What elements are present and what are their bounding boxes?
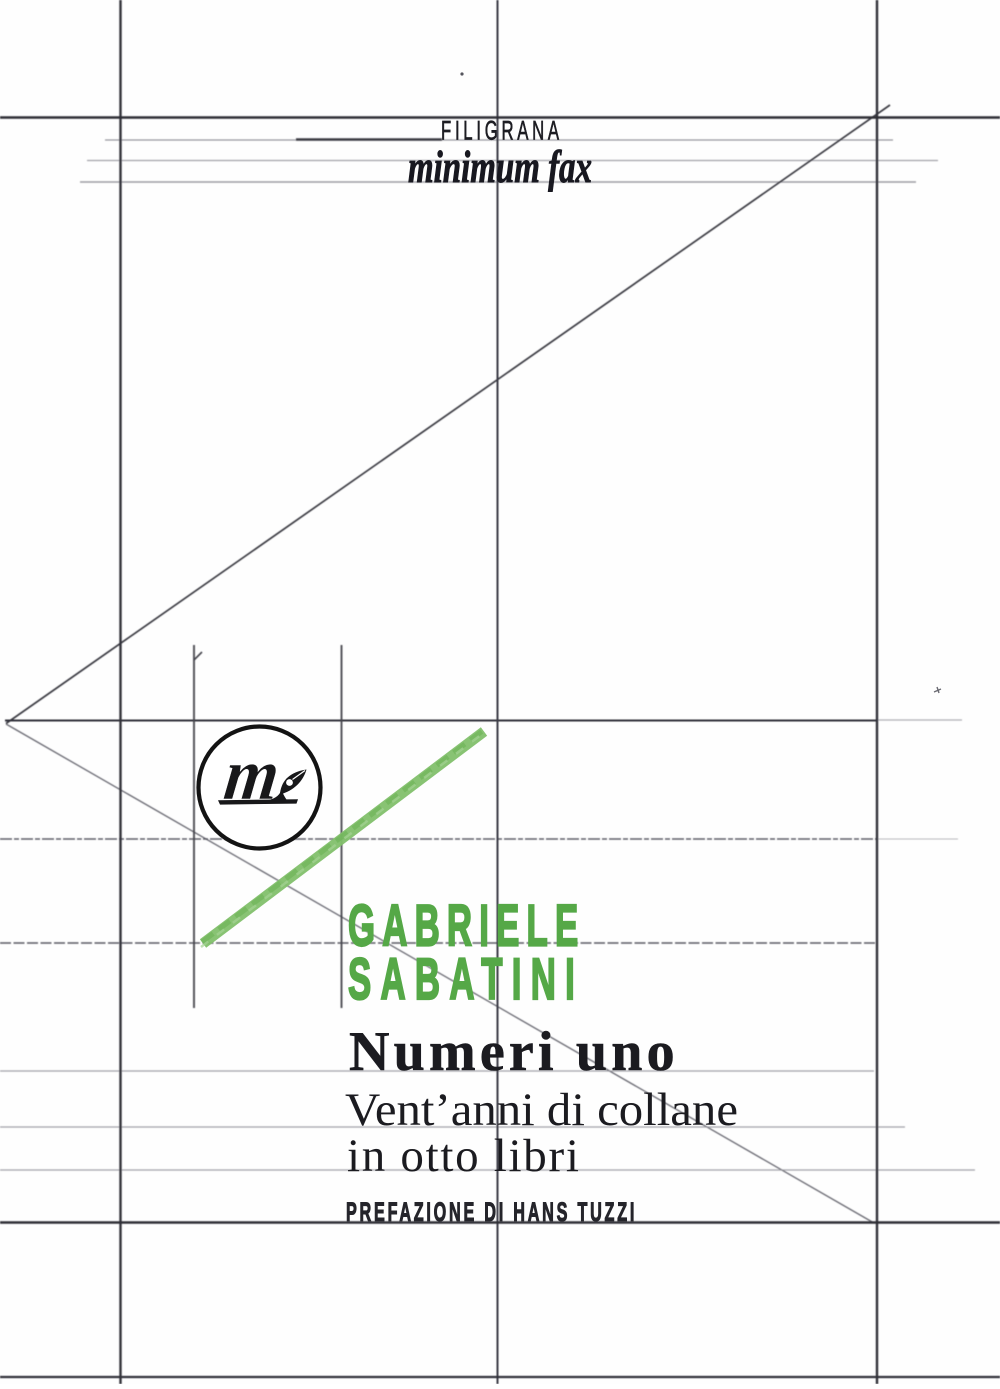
- svg-text:in otto libri: in otto libri: [347, 1130, 581, 1182]
- svg-text:Numeri uno: Numeri uno: [349, 1021, 679, 1083]
- svg-text:SABATINI: SABATINI: [348, 948, 584, 1012]
- svg-text:minimum fax: minimum fax: [408, 142, 592, 192]
- svg-text:Vent’anni di collane: Vent’anni di collane: [345, 1084, 738, 1136]
- svg-text:PREFAZIONE DI HANS TUZZI: PREFAZIONE DI HANS TUZZI: [346, 1197, 637, 1227]
- svg-text:FILIGRANA: FILIGRANA: [441, 115, 563, 145]
